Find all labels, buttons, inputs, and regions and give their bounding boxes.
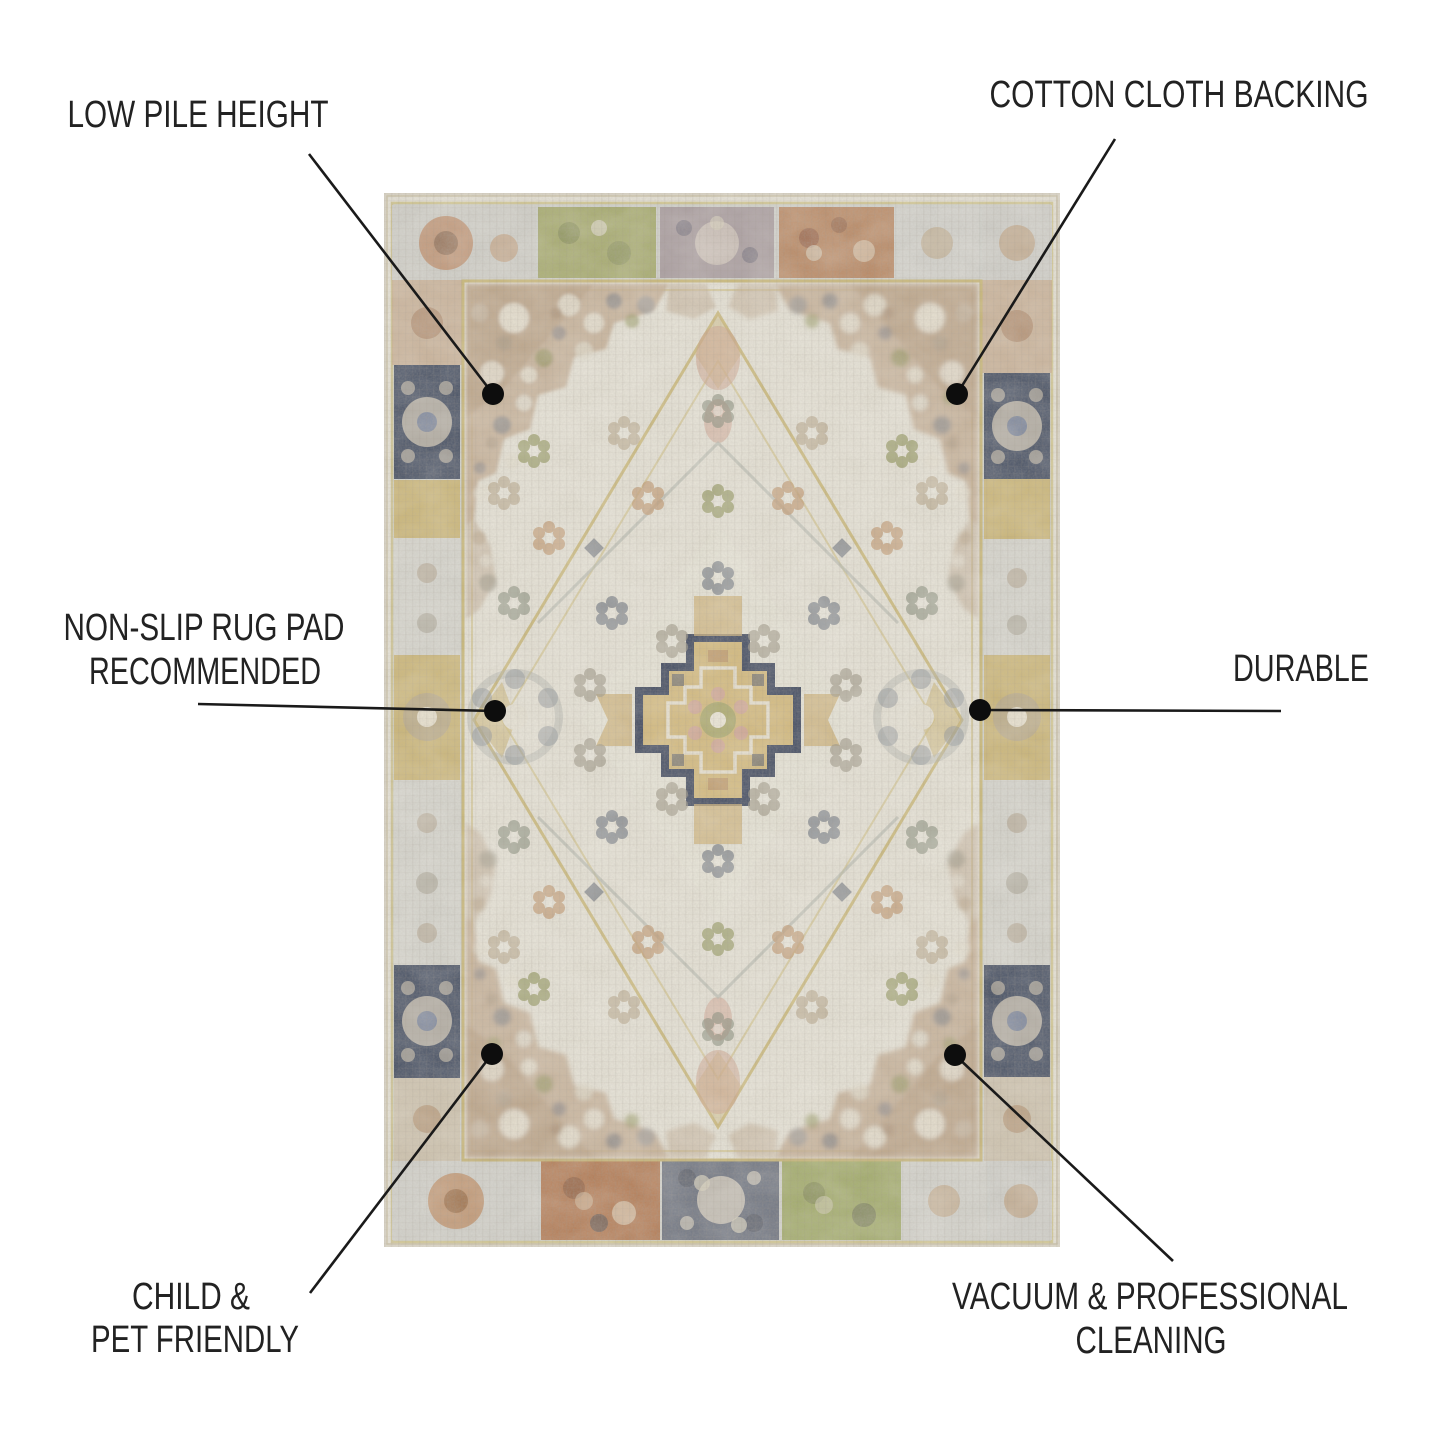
svg-text:CLEANING: CLEANING	[1076, 1320, 1227, 1362]
svg-text:DURABLE: DURABLE	[1233, 648, 1369, 690]
svg-text:VACUUM & PROFESSIONAL: VACUUM & PROFESSIONAL	[952, 1276, 1348, 1318]
svg-text:COTTON CLOTH BACKING: COTTON CLOTH BACKING	[990, 74, 1369, 116]
svg-text:NON-SLIP RUG PAD: NON-SLIP RUG PAD	[64, 607, 345, 649]
svg-text:PET FRIENDLY: PET FRIENDLY	[91, 1319, 299, 1361]
svg-text:CHILD &: CHILD &	[132, 1276, 250, 1318]
svg-text:LOW PILE HEIGHT: LOW PILE HEIGHT	[68, 94, 329, 136]
svg-text:RECOMMENDED: RECOMMENDED	[89, 651, 321, 693]
